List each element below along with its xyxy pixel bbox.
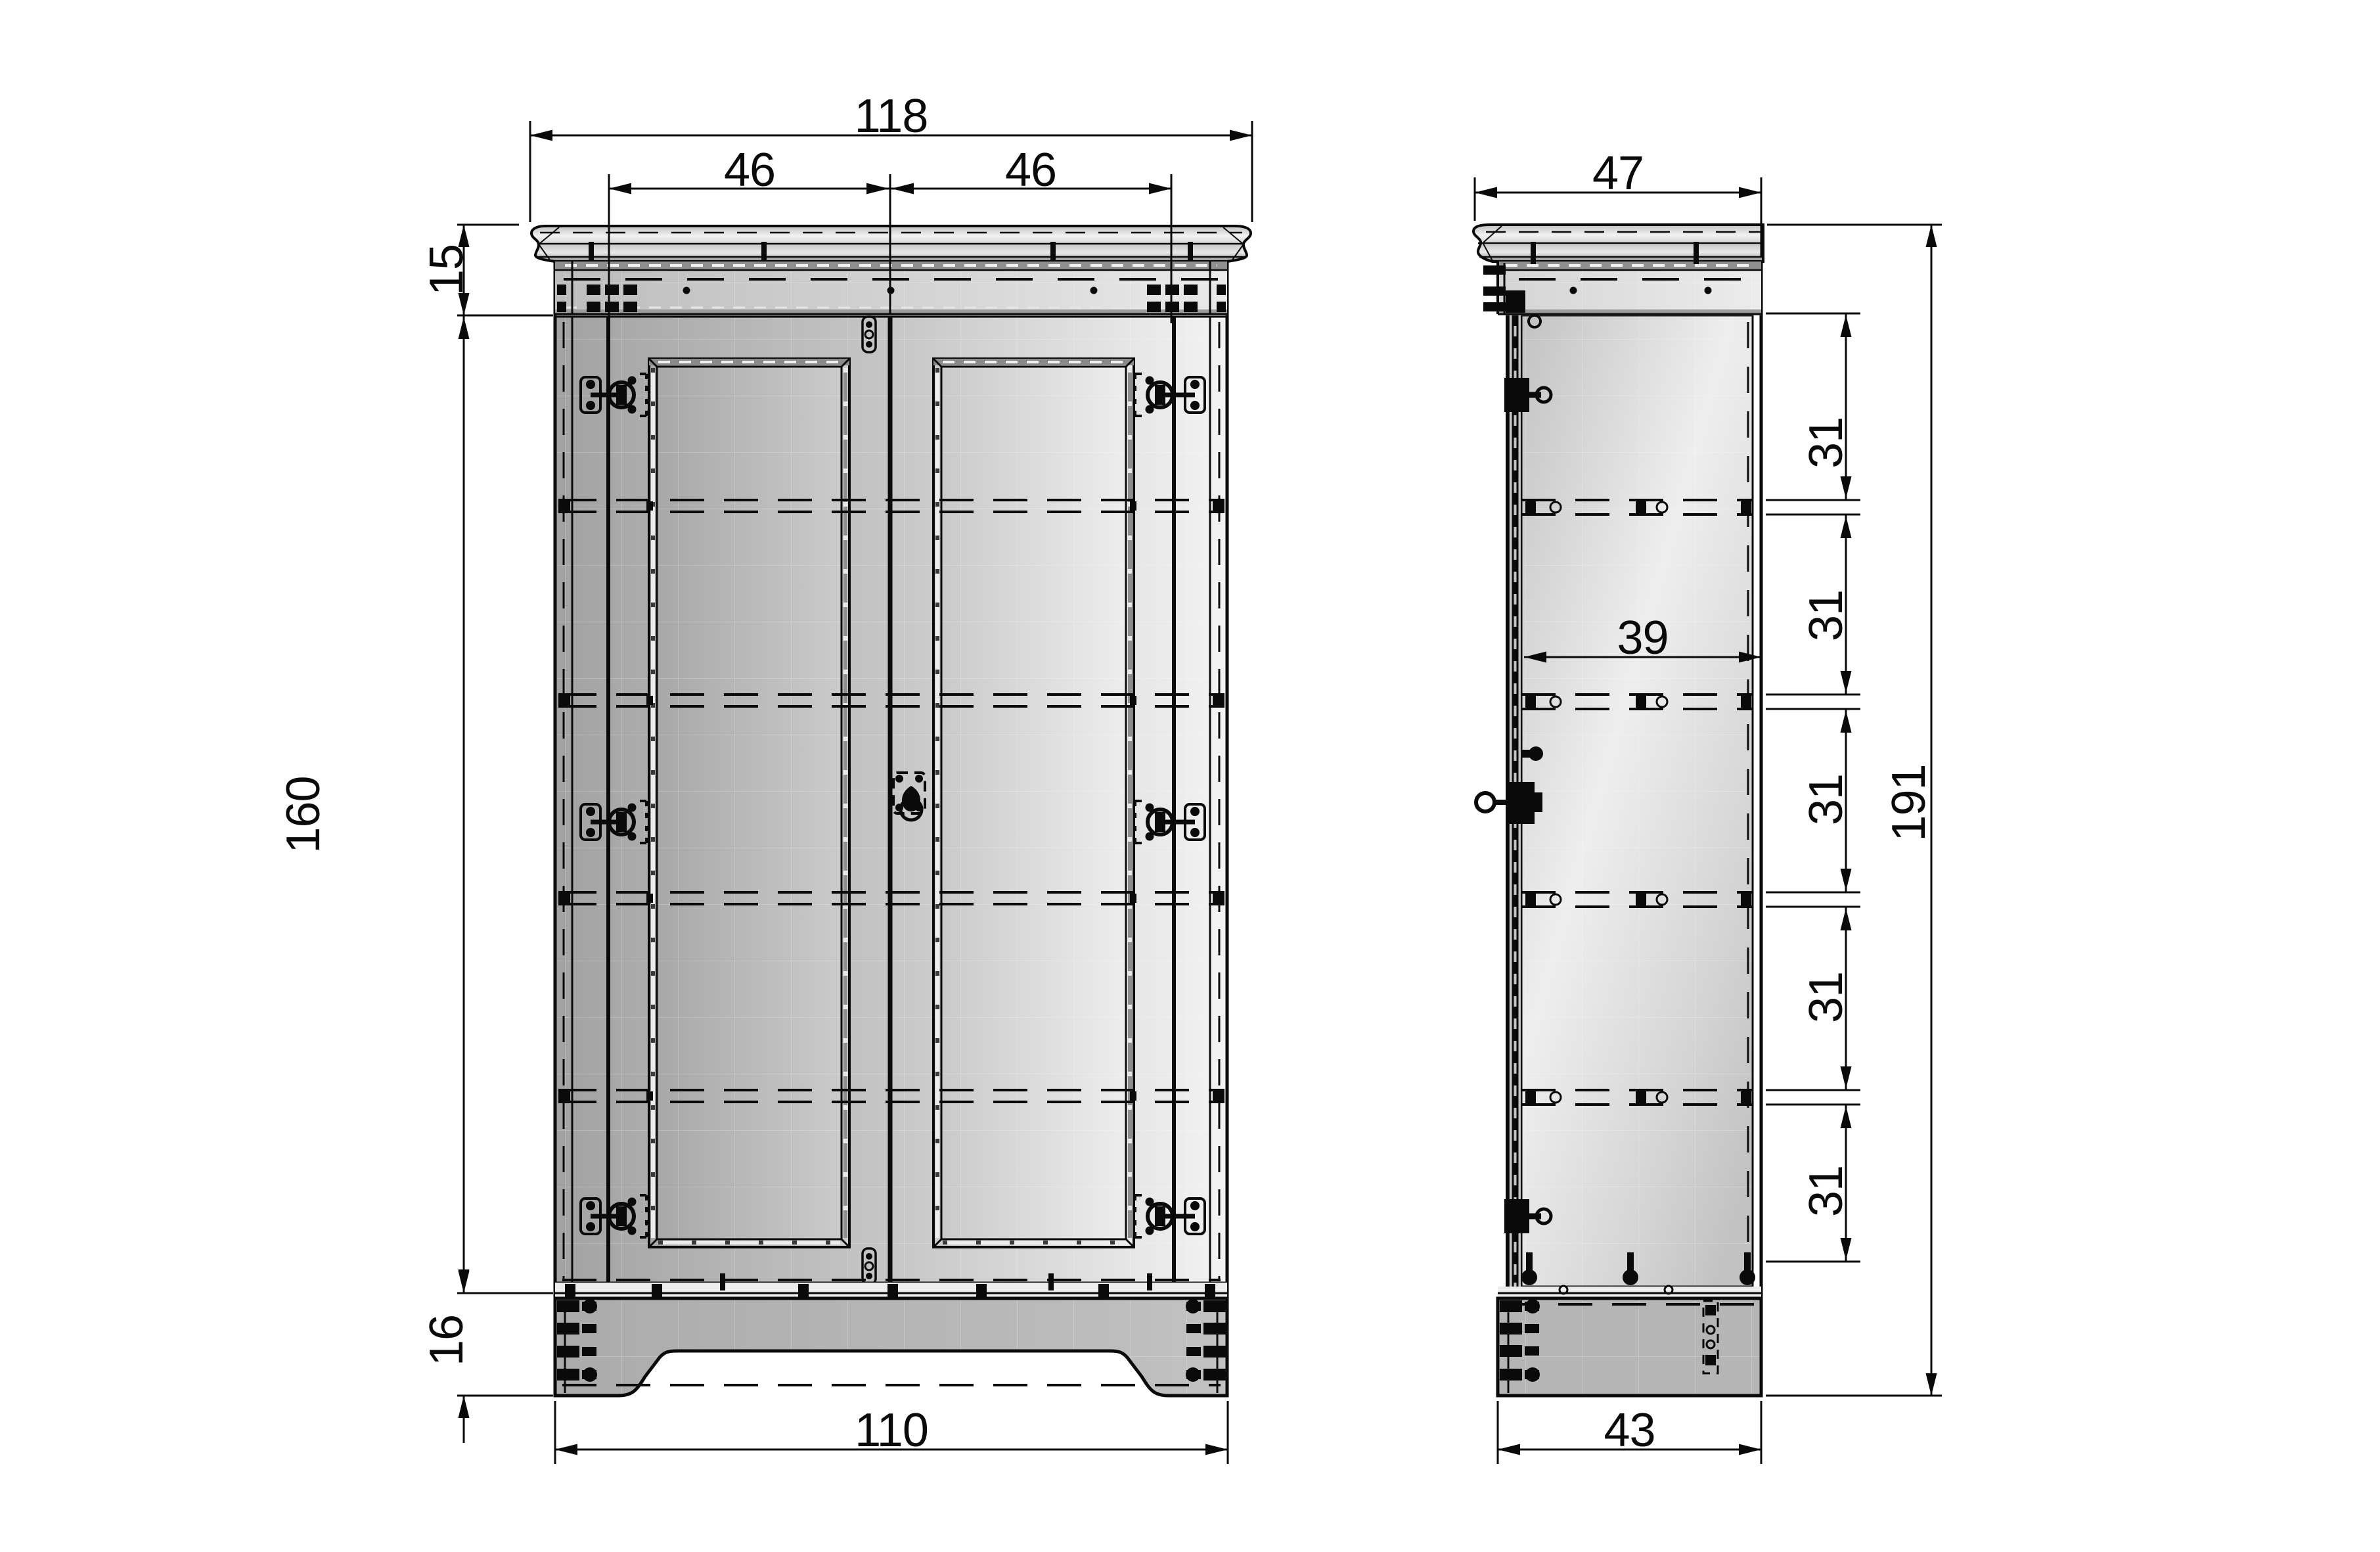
svg-text:16: 16 — [420, 1315, 473, 1366]
svg-text:43: 43 — [1604, 1404, 1655, 1457]
svg-text:31: 31 — [1800, 590, 1852, 641]
svg-text:31: 31 — [1800, 774, 1852, 825]
svg-text:46: 46 — [1005, 144, 1056, 196]
svg-text:31: 31 — [1800, 417, 1852, 468]
svg-text:31: 31 — [1800, 972, 1852, 1023]
svg-text:31: 31 — [1800, 1166, 1852, 1217]
svg-text:110: 110 — [855, 1404, 928, 1457]
svg-text:15: 15 — [420, 244, 473, 296]
svg-text:46: 46 — [724, 144, 775, 196]
svg-text:118: 118 — [855, 90, 928, 143]
svg-text:160: 160 — [277, 776, 330, 853]
svg-text:39: 39 — [1617, 612, 1668, 664]
svg-text:47: 47 — [1592, 147, 1644, 200]
svg-text:191: 191 — [1883, 764, 1935, 841]
